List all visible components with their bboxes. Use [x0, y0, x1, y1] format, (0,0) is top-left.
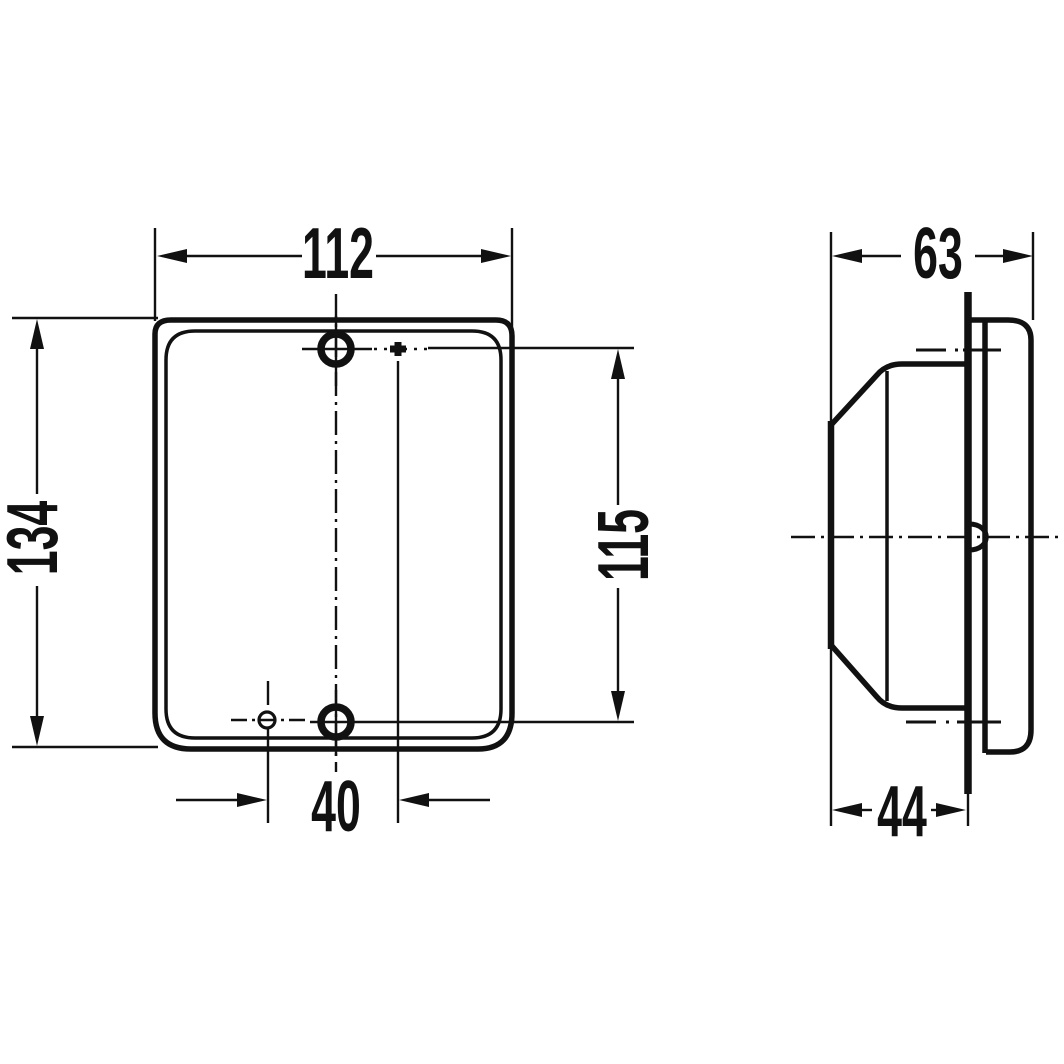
dimension-depth-front: 44 — [832, 771, 966, 852]
dimension-depth-total: 63 — [832, 213, 1033, 320]
lamp-technical-drawing: 112 134 115 40 — [0, 0, 1064, 1064]
dim-hole-offset-label: 40 — [311, 766, 361, 847]
dim-width-label: 112 — [302, 213, 374, 294]
lens-inner-bezel-line — [166, 331, 501, 738]
dim-hole-spacing-label: 115 — [583, 509, 664, 581]
dim-depth-total-label: 63 — [913, 213, 963, 294]
side-view: 63 44 — [791, 213, 1062, 852]
dimension-hole-offset: 40 — [176, 766, 490, 847]
alignment-mark-top — [374, 342, 428, 356]
front-view: 112 134 115 40 — [0, 213, 664, 847]
dim-height-label: 134 — [0, 501, 73, 575]
drain-hole-bottom — [231, 681, 308, 728]
dim-depth-front-label: 44 — [877, 771, 927, 852]
dimension-height: 134 — [0, 318, 158, 747]
drawing-canvas: 112 134 115 40 — [0, 0, 1064, 1064]
lens-outer-outline — [155, 320, 512, 749]
dimension-hole-spacing: 115 — [310, 348, 664, 722]
